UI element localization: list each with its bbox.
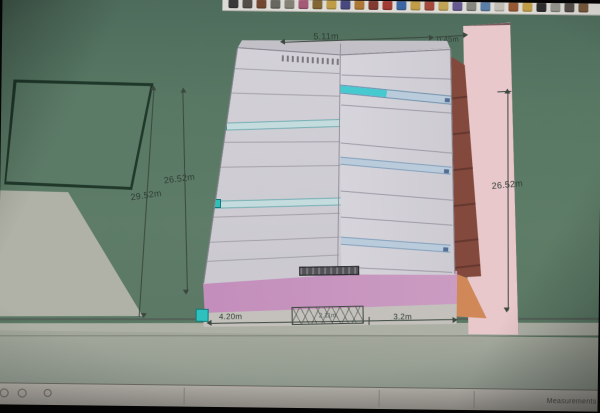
floor-line xyxy=(340,216,453,225)
status-circle-icon[interactable] xyxy=(44,389,52,397)
bottom-dim-mid-tick xyxy=(369,317,370,325)
floor-line xyxy=(208,213,340,218)
application-window: 5.11m 0.45m 29.52m 26.52m 26.52m 4.20m 3… xyxy=(0,0,600,412)
zoom-tool-icon[interactable] xyxy=(452,1,462,11)
line-tool-icon[interactable] xyxy=(242,0,252,8)
selected-balcony-band[interactable] xyxy=(339,84,452,104)
dimension-arrow xyxy=(140,313,147,321)
dimension-arrow xyxy=(504,308,510,316)
measurements-box[interactable]: Measurements xyxy=(547,398,597,406)
bottom-right-width-label: 3.2m xyxy=(385,312,421,322)
section-plane-icon[interactable] xyxy=(550,2,560,12)
dimension-arrow xyxy=(183,290,189,298)
offset-tool-icon[interactable] xyxy=(410,0,420,10)
curb-line xyxy=(0,335,600,336)
status-circle-icon[interactable] xyxy=(18,389,27,398)
floor-line xyxy=(208,237,340,243)
arc-tool-icon[interactable] xyxy=(284,0,294,9)
look-around-icon[interactable] xyxy=(522,2,532,12)
entrance-canopy xyxy=(299,266,359,276)
rotate-tool-icon[interactable] xyxy=(396,0,406,10)
next-view-icon[interactable] xyxy=(494,1,504,11)
tape-measure-icon[interactable] xyxy=(312,0,322,9)
paint-bucket-icon[interactable] xyxy=(354,0,364,10)
rectangle-tool-icon[interactable] xyxy=(256,0,266,9)
push-pull-icon[interactable] xyxy=(368,0,378,10)
zoom-extents-icon[interactable] xyxy=(466,1,476,11)
orbit-tool-icon[interactable] xyxy=(424,1,434,11)
building-right-facade xyxy=(337,38,460,279)
balcony-band xyxy=(338,156,451,174)
balcony-band xyxy=(337,236,450,252)
status-separator xyxy=(379,390,380,407)
dimension-arrow xyxy=(504,86,510,94)
balcony-band xyxy=(215,119,343,131)
eraser-tool-icon[interactable] xyxy=(298,0,308,9)
floor-line xyxy=(341,104,454,113)
selected-entity-marker[interactable] xyxy=(196,309,209,322)
photographed-screen: 5.11m 0.45m 29.52m 26.52m 26.52m 4.20m 3… xyxy=(0,0,600,413)
floor-line xyxy=(340,190,453,200)
pan-tool-icon[interactable] xyxy=(438,1,448,11)
position-camera-icon[interactable] xyxy=(508,2,518,12)
floor-line xyxy=(209,141,341,143)
status-separator xyxy=(474,391,475,408)
ramp-hatch-box: 2.11m xyxy=(291,306,363,325)
walk-tool-icon[interactable] xyxy=(536,2,546,12)
select-tool-icon[interactable] xyxy=(228,0,238,8)
bottom-left-width-label: 4.20m xyxy=(211,312,251,322)
shadows-icon[interactable] xyxy=(564,2,574,12)
status-separator xyxy=(184,388,185,405)
foreground-ground xyxy=(0,330,598,391)
dimension-arrow xyxy=(453,317,461,323)
floor-line xyxy=(207,254,339,261)
previous-view-icon[interactable] xyxy=(480,1,490,11)
ramp-note-label: 2.11m xyxy=(319,312,337,319)
dimension-arrow xyxy=(150,82,157,90)
dimension-arrow xyxy=(463,32,471,38)
dimension-arrow xyxy=(429,34,437,40)
floor-line xyxy=(342,74,455,79)
text-tool-icon[interactable] xyxy=(340,0,350,10)
model-info-icon[interactable] xyxy=(578,2,588,12)
floor-line xyxy=(341,142,454,153)
roof-hatch-strip xyxy=(282,55,340,65)
move-tool-icon[interactable] xyxy=(382,0,392,10)
dimension-arrow xyxy=(277,39,285,45)
dimension-arrow xyxy=(180,85,186,93)
floor-line xyxy=(208,165,340,168)
circle-tool-icon[interactable] xyxy=(270,0,280,9)
status-circle-icon[interactable] xyxy=(0,388,9,397)
protractor-icon[interactable] xyxy=(326,0,336,9)
balcony-band xyxy=(209,197,342,208)
